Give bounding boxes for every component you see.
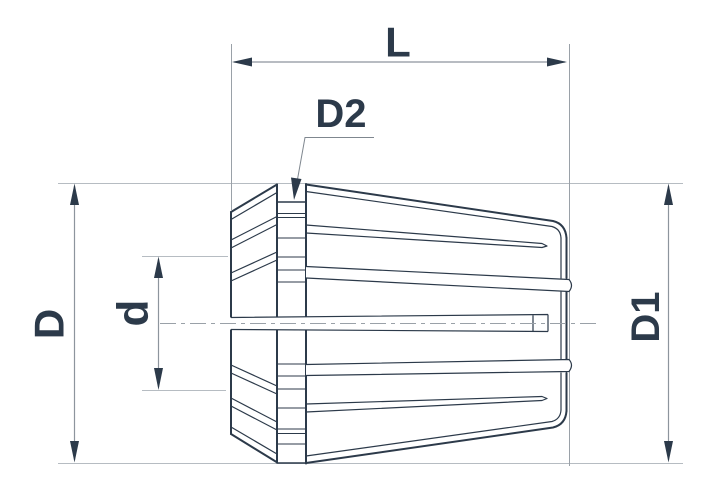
- extension-lines: [58, 44, 683, 466]
- label-L: L: [385, 19, 411, 66]
- slot-pointed-lower: [306, 397, 547, 413]
- arrow-down-icon: [664, 441, 673, 463]
- label-D2: D2: [315, 92, 366, 136]
- body-bottom-edge: [306, 411, 567, 463]
- arrow-down-icon: [291, 178, 302, 201]
- label-D1: D1: [624, 291, 668, 342]
- label-D: D: [26, 309, 73, 339]
- leader-D2: [291, 138, 374, 201]
- collet-through-slots: [230, 267, 572, 376]
- arrow-up-icon: [154, 257, 163, 279]
- collet-neck-groove: [277, 202, 306, 463]
- nose-line: [231, 427, 277, 454]
- arrow-up-icon: [664, 184, 673, 206]
- arrow-down-icon: [154, 368, 163, 390]
- nose-top-edge: [231, 185, 277, 213]
- arrow-right-icon: [547, 58, 567, 67]
- dimension-labels: L D2 D d D1: [26, 19, 669, 343]
- slot-fill: [306, 267, 572, 292]
- arrow-up-icon: [70, 184, 79, 206]
- chamfer-line: [306, 192, 561, 239]
- label-d: d: [109, 300, 158, 327]
- slot-pointed-upper: [306, 225, 547, 248]
- chamfer-line: [306, 410, 561, 456]
- collet-dimension-diagram: L D2 D d D1: [0, 0, 724, 488]
- body-top-edge: [306, 185, 567, 239]
- nose-bottom-edge: [231, 434, 277, 462]
- nose-line: [231, 193, 277, 220]
- dimension-lines: [75, 62, 669, 460]
- arrow-down-icon: [70, 441, 79, 463]
- arrow-left-icon: [232, 58, 252, 67]
- technical-drawing-canvas: L D2 D d D1: [0, 0, 724, 488]
